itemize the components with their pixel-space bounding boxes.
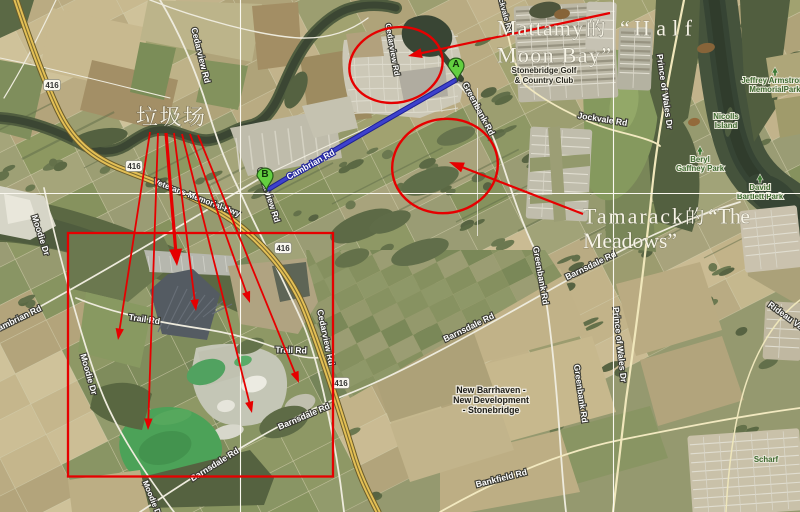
svg-text:B: B	[261, 169, 268, 180]
svg-text:& Country Club: & Country Club	[515, 76, 574, 85]
svg-text:“The: “The	[708, 204, 750, 229]
svg-text:New Development: New Development	[453, 395, 529, 405]
svg-text:Jeffrey Armstrong: Jeffrey Armstrong	[741, 76, 800, 85]
svg-text:Gaffney Park: Gaffney Park	[676, 164, 725, 173]
svg-text:David: David	[749, 183, 770, 192]
svg-text:416: 416	[127, 162, 141, 171]
svg-text:416: 416	[334, 379, 348, 388]
svg-text:Meadows”: Meadows”	[583, 228, 677, 253]
svg-text:Beryl: Beryl	[690, 155, 710, 164]
svg-text:Half: Half	[634, 16, 693, 41]
svg-text:- Stonebridge: - Stonebridge	[463, 405, 520, 415]
svg-text:MemorialPark: MemorialPark	[749, 85, 800, 94]
svg-text:Scharf: Scharf	[754, 455, 779, 464]
svg-text:416: 416	[45, 81, 59, 90]
svg-text:Mattamy: Mattamy	[497, 16, 583, 41]
svg-text:“: “	[620, 16, 630, 41]
svg-text:Tamarack: Tamarack	[583, 204, 683, 229]
svg-text:Moon Bay”: Moon Bay”	[497, 43, 611, 68]
svg-text:Trail Rd: Trail Rd	[275, 344, 307, 355]
svg-text:416: 416	[276, 244, 290, 253]
svg-text:Island: Island	[715, 121, 738, 130]
svg-text:Nicolls: Nicolls	[713, 112, 739, 121]
svg-text:New Barrhaven -: New Barrhaven -	[456, 385, 525, 395]
svg-text:A: A	[452, 59, 459, 70]
